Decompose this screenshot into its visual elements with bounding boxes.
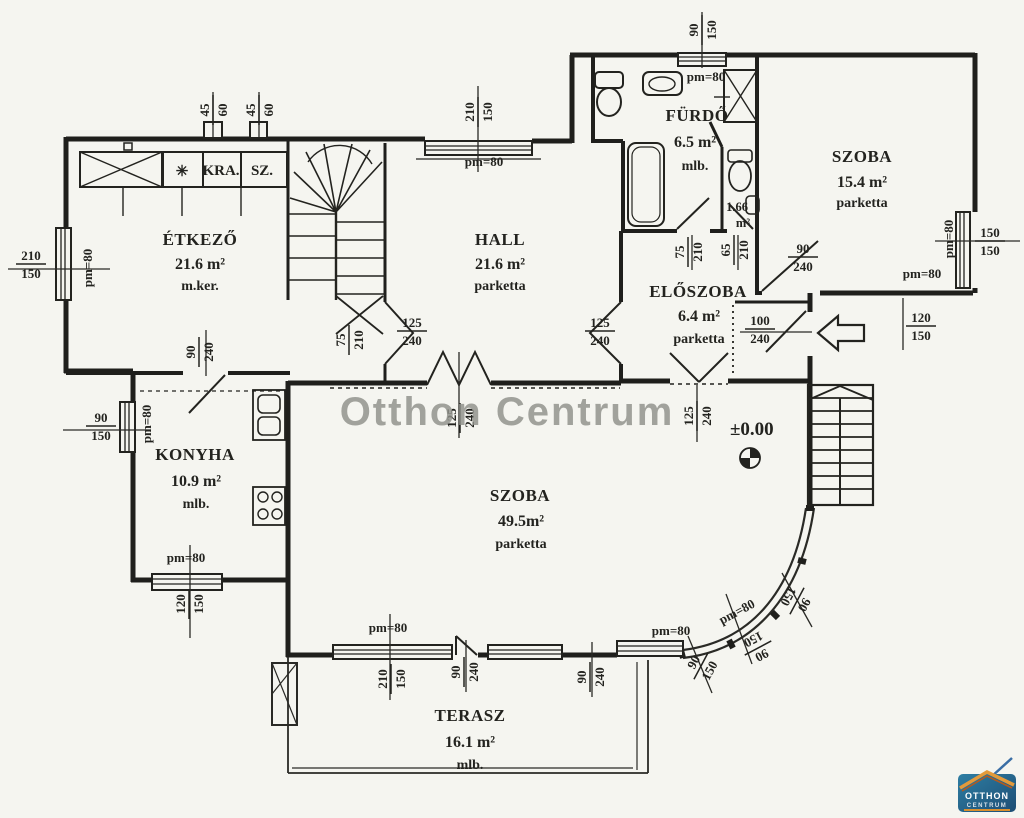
svg-text:m.ker.: m.ker. [181, 279, 219, 294]
svg-text:75: 75 [672, 245, 687, 259]
svg-text:mlb.: mlb. [682, 159, 709, 174]
svg-text:210: 210 [690, 242, 705, 262]
svg-text:150: 150 [480, 102, 495, 122]
svg-text:6.4 m²: 6.4 m² [678, 308, 720, 325]
parapet-label: pm=80 [941, 220, 956, 258]
svg-text:150: 150 [980, 243, 1000, 258]
svg-text:pm=80: pm=80 [80, 249, 95, 287]
dimension-label: 4560 [243, 95, 276, 125]
parapet-label: pm=80 [652, 623, 690, 638]
svg-text:FÜRDŐ: FÜRDŐ [666, 106, 729, 125]
door-furdo [677, 198, 709, 229]
closet-label-sz: SZ. [251, 163, 273, 179]
svg-text:150: 150 [191, 594, 206, 614]
szoba2-bottom-window-2 [488, 645, 562, 659]
svg-text:75: 75 [333, 333, 348, 347]
dimension-label: 90150 [737, 626, 779, 669]
parapet-label: pm=80 [903, 266, 941, 281]
parapet-label: pm=80 [80, 249, 95, 287]
winder-staircase [288, 144, 385, 334]
svg-text:150: 150 [21, 266, 41, 281]
closet-asterisk: ✳ [176, 164, 189, 180]
svg-text:21.6 m²: 21.6 m² [175, 256, 225, 273]
dimension-label: 125240 [397, 315, 427, 348]
toilet [595, 72, 623, 116]
svg-text:parketta: parketta [673, 332, 724, 347]
svg-text:125: 125 [681, 406, 696, 426]
svg-text:240: 240 [402, 333, 422, 348]
room-label-szoba2: SZOBA49.5m²parketta [490, 486, 550, 552]
svg-text:21.6 m²: 21.6 m² [475, 256, 525, 273]
room-label-eloszoba: ELŐSZOBA6.4 m²parketta [649, 282, 747, 347]
room-label-konyha: KONYHA10.9 m²mlb. [155, 445, 235, 512]
dimension-label: 125240 [585, 315, 615, 348]
dimension-label: 120150 [173, 589, 206, 619]
dimension-label: 210150 [16, 248, 46, 281]
svg-text:90: 90 [183, 346, 198, 359]
svg-text:pm=80: pm=80 [652, 623, 690, 638]
svg-text:pm=80: pm=80 [167, 550, 205, 565]
szoba2-bottom-window-3 [617, 641, 683, 656]
svg-text:16.1 m²: 16.1 m² [445, 734, 495, 751]
svg-text:parketta: parketta [836, 196, 887, 211]
dimension-label: 90240 [183, 337, 216, 367]
svg-text:210: 210 [351, 330, 366, 350]
svg-text:100: 100 [750, 313, 770, 328]
svg-text:90: 90 [574, 671, 589, 684]
svg-text:150: 150 [91, 428, 111, 443]
svg-text:240: 240 [592, 667, 607, 687]
logo-line2: CENTRUM [967, 803, 1008, 809]
svg-text:120: 120 [173, 594, 188, 614]
konyha-bottom-window [152, 574, 222, 590]
dimension-label: 90240 [574, 662, 607, 692]
kitchen-sink [253, 390, 285, 440]
svg-text:150: 150 [911, 328, 931, 343]
entrance-arrow [818, 316, 864, 350]
svg-text:pm=80: pm=80 [941, 220, 956, 258]
svg-text:120: 120 [911, 310, 931, 325]
svg-text:60: 60 [215, 104, 230, 117]
svg-text:90: 90 [686, 24, 701, 37]
floor-plan-canvas: ±0.00 ÉTKEZŐ21.6 m²m.ker. HALL21.6 m²par… [0, 0, 1024, 818]
szoba2-bottom-window-1 [333, 645, 452, 659]
svg-text:240: 240 [466, 662, 481, 682]
svg-text:pm=80: pm=80 [139, 405, 154, 443]
svg-text:pm=80: pm=80 [903, 266, 941, 281]
level-marker: ±0.00 [730, 419, 774, 468]
external-staircase [808, 385, 873, 505]
svg-text:240: 240 [750, 331, 770, 346]
wall-mark [124, 143, 132, 150]
svg-text:210: 210 [462, 102, 477, 122]
door-eloszoba-szoba [670, 353, 728, 382]
logo-line1: OTTHON [965, 791, 1009, 801]
wc-toilet [728, 150, 752, 191]
svg-text:150: 150 [393, 669, 408, 689]
dimension-label: 90150 [86, 410, 116, 443]
svg-text:49.5m²: 49.5m² [498, 513, 544, 530]
dimension-label: 125240 [681, 401, 714, 431]
wc-area-unit: m² [736, 216, 750, 230]
svg-text:210: 210 [21, 248, 41, 263]
svg-text:parketta: parketta [495, 537, 546, 552]
dimension-label: 75210 [672, 237, 705, 267]
dimension-label: 210150 [462, 97, 495, 127]
svg-text:pm=80: pm=80 [369, 620, 407, 635]
room-label-szoba1: SZOBA15.4 m²parketta [832, 147, 892, 211]
dimension-label: 210150 [375, 664, 408, 694]
szoba1-right-window [956, 212, 970, 288]
svg-text:SZOBA: SZOBA [490, 486, 550, 505]
svg-text:ÉTKEZŐ: ÉTKEZŐ [163, 230, 238, 249]
svg-text:parketta: parketta [474, 279, 525, 294]
svg-text:mlb.: mlb. [183, 497, 210, 512]
room-label-hall: HALL21.6 m²parketta [474, 230, 525, 294]
floor-plan-page: ±0.00 ÉTKEZŐ21.6 m²m.ker. HALL21.6 m²par… [0, 0, 1024, 818]
dimension-label: 100240 [745, 313, 775, 346]
dimension-label: 90150 [680, 645, 723, 687]
svg-text:150: 150 [704, 20, 719, 40]
svg-text:ELŐSZOBA: ELŐSZOBA [649, 282, 747, 301]
dimension-lines [8, 12, 1020, 700]
svg-text:150: 150 [980, 225, 1000, 240]
svg-text:60: 60 [261, 104, 276, 117]
parapet-label: pm=80 [465, 154, 503, 169]
svg-text:10.9 m²: 10.9 m² [171, 473, 221, 490]
svg-text:15.4 m²: 15.4 m² [837, 174, 887, 191]
svg-text:HALL: HALL [475, 230, 525, 249]
svg-text:pm=80: pm=80 [465, 154, 503, 169]
svg-text:90: 90 [448, 666, 463, 679]
room-label-etkezo: ÉTKEZŐ21.6 m²m.ker. [163, 230, 238, 294]
parapet-label: pm=80 [139, 405, 154, 443]
closet-label-kra: KRA. [202, 163, 239, 179]
svg-text:mlb.: mlb. [457, 758, 484, 773]
svg-text:240: 240 [590, 333, 610, 348]
dimension-label: 65210 [718, 235, 751, 265]
svg-text:125: 125 [590, 315, 610, 330]
sink [643, 72, 682, 95]
dimension-label: 90240 [448, 657, 481, 687]
closet-row [80, 152, 287, 216]
konyha-left-window [120, 402, 135, 452]
dimension-label: 75210 [333, 325, 366, 355]
parapet-label: pm=80 [369, 620, 407, 635]
svg-text:90: 90 [797, 241, 810, 256]
bathtub [628, 143, 664, 226]
svg-text:SZOBA: SZOBA [832, 147, 892, 166]
room-label-terasz: TERASZ16.1 m²mlb. [434, 706, 505, 773]
parapet-label: pm=80 [167, 550, 205, 565]
parapet-label: pm=80 [687, 69, 725, 84]
svg-text:90: 90 [95, 410, 108, 425]
dimension-label: 90150 [686, 15, 719, 45]
svg-text:240: 240 [793, 259, 813, 274]
svg-text:45: 45 [197, 103, 212, 117]
svg-text:210: 210 [736, 240, 751, 260]
level-label: ±0.00 [730, 419, 774, 440]
svg-text:KONYHA: KONYHA [155, 445, 235, 464]
dimension-label: 120150 [906, 310, 936, 343]
svg-text:65: 65 [718, 243, 733, 257]
door-etkezo-konyha [189, 375, 225, 413]
svg-text:125: 125 [402, 315, 422, 330]
svg-text:240: 240 [201, 342, 216, 362]
dimension-label: 4560 [197, 95, 230, 125]
svg-text:pm=80: pm=80 [687, 69, 725, 84]
svg-text:210: 210 [375, 669, 390, 689]
agency-logo: OTTHON CENTRUM [958, 758, 1016, 812]
dimension-labels: 45604560210150pm=8090150pm=80210150pm=80… [16, 15, 1005, 694]
watermark-text: Otthon Centrum [340, 390, 675, 434]
etkezo-left-window [56, 228, 71, 300]
svg-text:6.5 m²: 6.5 m² [674, 134, 716, 151]
svg-text:45: 45 [243, 103, 258, 117]
dimension-label: 150150 [975, 225, 1005, 258]
svg-text:TERASZ: TERASZ [434, 706, 505, 725]
wc-area-value: 1.66 [726, 200, 748, 214]
kitchen-stove [253, 487, 285, 525]
svg-text:240: 240 [699, 406, 714, 426]
